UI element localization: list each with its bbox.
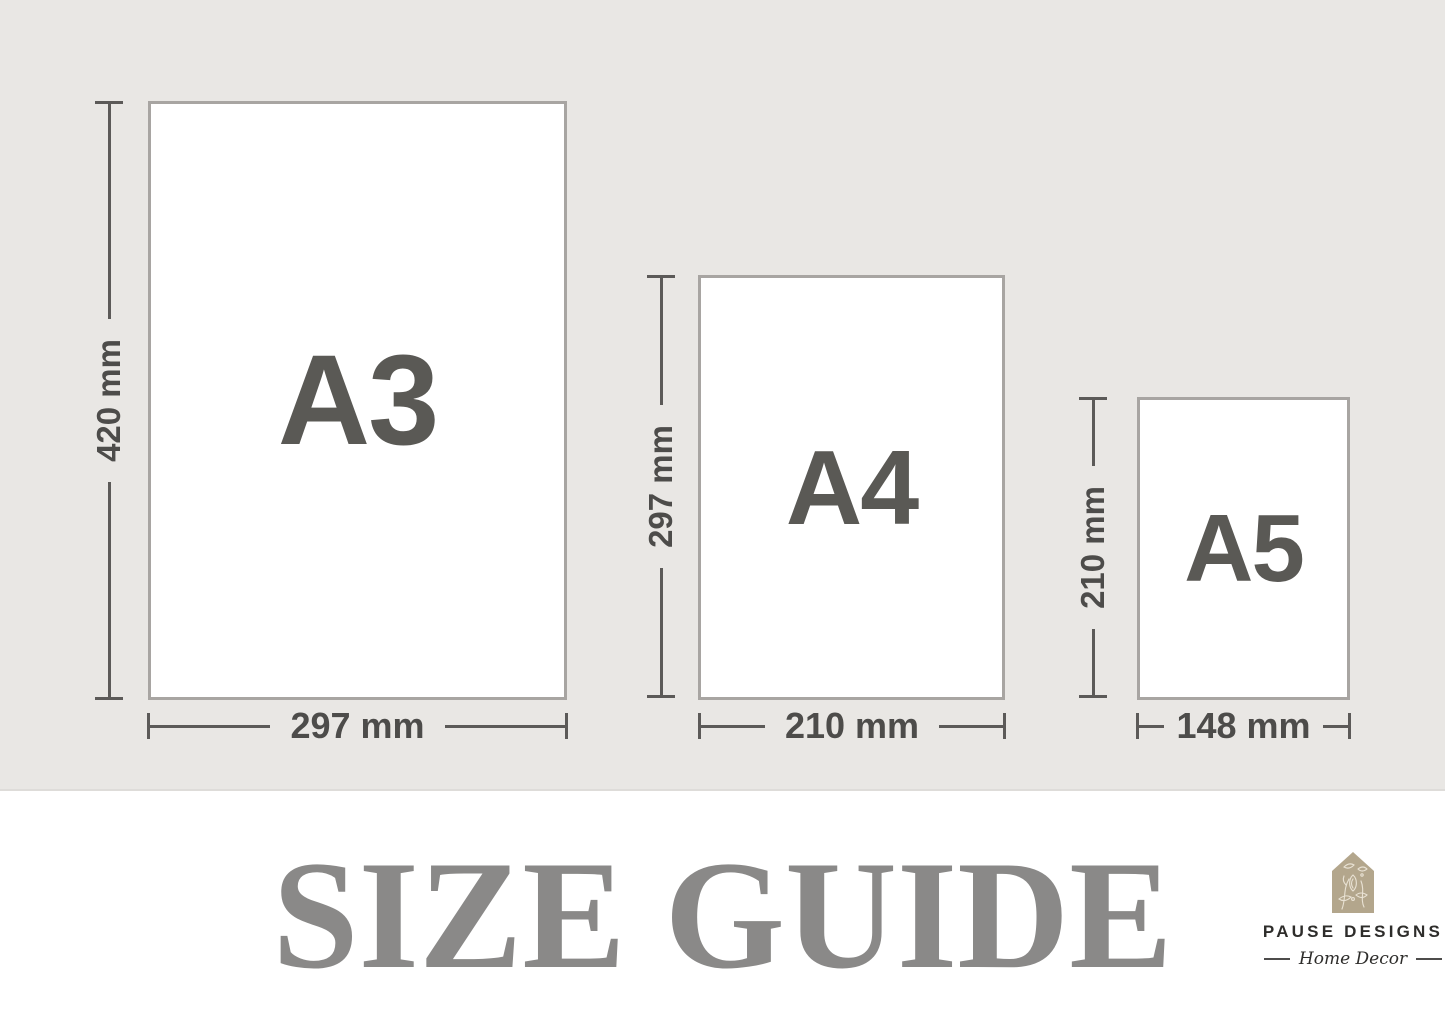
dim-line bbox=[660, 568, 663, 695]
dim-line bbox=[1139, 725, 1164, 728]
dim-line bbox=[108, 482, 111, 697]
a3-width-dimension: 297 mm bbox=[147, 712, 568, 740]
dim-line bbox=[108, 104, 111, 319]
dim-tick bbox=[1348, 713, 1351, 739]
dim-line bbox=[701, 725, 765, 728]
brand-name: PAUSE DESIGNS bbox=[1263, 922, 1443, 942]
a3-width-label: 297 mm bbox=[270, 708, 444, 744]
dim-cap bbox=[95, 697, 123, 700]
brand-tagline-row: Home Decor bbox=[1264, 949, 1442, 969]
a4-width-label: 210 mm bbox=[765, 708, 939, 744]
dim-line bbox=[1323, 725, 1348, 728]
dim-cap bbox=[1079, 695, 1107, 698]
a5-width-dimension: 148 mm bbox=[1136, 712, 1351, 740]
a5-width-label: 148 mm bbox=[1164, 708, 1322, 744]
dim-cap bbox=[647, 695, 675, 698]
dim-line bbox=[1092, 629, 1095, 695]
dim-line bbox=[939, 725, 1003, 728]
dim-tick bbox=[1003, 713, 1006, 739]
brand-logo: PAUSE DESIGNS Home Decor bbox=[1258, 851, 1445, 969]
a5-height-dimension: 210 mm bbox=[1078, 397, 1108, 698]
dim-line bbox=[150, 725, 270, 728]
a4-height-dimension: 297 mm bbox=[646, 275, 676, 698]
brand-tagline: Home Decor bbox=[1299, 949, 1407, 969]
tagline-dash-right bbox=[1416, 958, 1442, 960]
a3-paper-label: A3 bbox=[278, 337, 438, 465]
a4-paper-label: A4 bbox=[786, 435, 918, 541]
a3-paper: A3 bbox=[148, 101, 567, 700]
page-title: SIZE GUIDE bbox=[0, 838, 1445, 993]
a3-height-label: 420 mm bbox=[90, 319, 128, 482]
a3-height-dimension: 420 mm bbox=[94, 101, 124, 700]
a5-height-label: 210 mm bbox=[1074, 466, 1112, 629]
a4-height-label: 297 mm bbox=[642, 405, 680, 568]
tagline-dash-left bbox=[1264, 958, 1290, 960]
size-guide-canvas: 420 mm A3 297 mm 297 mm A4 bbox=[0, 0, 1445, 1021]
dim-line bbox=[445, 725, 565, 728]
footer-band: SIZE GUIDE PAUSE DESIGNS bbox=[0, 789, 1445, 1021]
dim-line bbox=[660, 278, 663, 405]
a4-width-dimension: 210 mm bbox=[698, 712, 1006, 740]
dim-tick bbox=[565, 713, 568, 739]
a5-paper: A5 bbox=[1137, 397, 1350, 700]
house-botanical-icon bbox=[1332, 851, 1374, 913]
dim-line bbox=[1092, 400, 1095, 466]
a5-paper-label: A5 bbox=[1184, 501, 1303, 597]
a4-paper: A4 bbox=[698, 275, 1005, 700]
